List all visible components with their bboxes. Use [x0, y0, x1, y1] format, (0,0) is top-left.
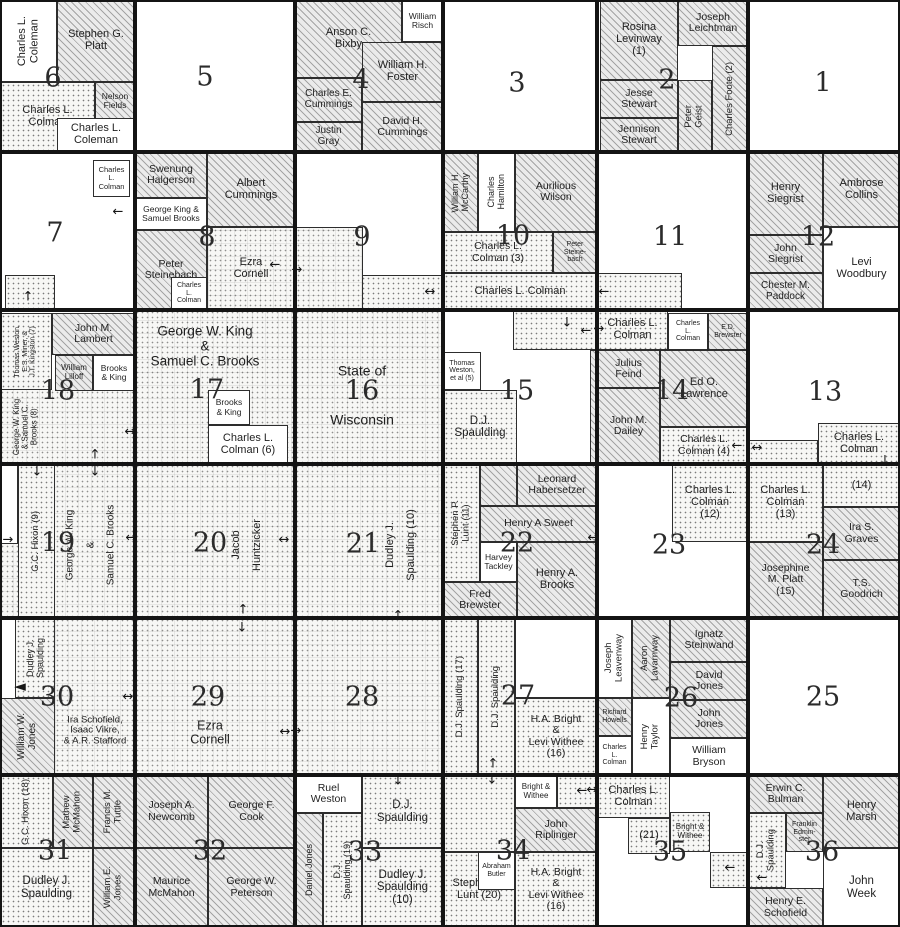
parcel-owner-label: Henry A. Brooks [536, 568, 578, 592]
parcel-owner-label: John Riplinger [535, 819, 576, 842]
parcel-owner-label: Aurilious Wilson [536, 181, 576, 204]
section-number-2: 2 [658, 65, 675, 96]
field-owner-label: Wisconsin [330, 412, 394, 427]
parcel[interactable]: D.J. Spaulding (19) [323, 813, 362, 927]
parcel-owner-label: George W. Peterson [226, 876, 276, 899]
parcel-owner-label: Jennison Stewart [618, 124, 660, 147]
parcel-owner-label: Charles L. Coleman [71, 123, 121, 147]
parcel[interactable]: Joseph Leavenway [597, 618, 632, 698]
parcel[interactable]: Chester M. Paddock [748, 273, 823, 310]
annotation-arrow-icon: ← [113, 205, 124, 220]
parcel-owner-label: Chester M. Paddock [761, 281, 810, 303]
parcel-owner-label: D.J. Spaulding (17) [455, 656, 466, 737]
parcel-owner-label: William H. McCarthy [450, 172, 470, 213]
parcel-owner-label: William W. Jones [16, 713, 38, 760]
section-number-11: 11 [653, 222, 687, 253]
annotation-arrow-icon: → [291, 724, 302, 739]
parcel[interactable]: Albert Cummings [207, 152, 295, 227]
parcel-owner-label: Erwin C. Bulman [766, 783, 806, 806]
parcel[interactable]: Leonard Habersetzer [517, 464, 597, 506]
parcel-owner-label: Ambrose Collins [839, 178, 883, 202]
section-number-19: 19 [41, 528, 75, 559]
parcel[interactable]: T.S. Goodrich [823, 560, 900, 618]
parcel-owner-label: John M. Lambert [74, 323, 113, 346]
parcel[interactable]: E.D. Brewster [708, 313, 748, 350]
parcel-owner-label: John M. Dailey [610, 415, 647, 438]
section-number-18: 18 [41, 376, 75, 407]
parcel-owner-label: Dudley J. Spaulding [25, 638, 45, 678]
parcel-owner-label: Mathew McMahon [62, 791, 83, 833]
parcel[interactable]: Swenung Halgerson [135, 152, 207, 198]
parcel[interactable]: Jennison Stewart [600, 118, 678, 152]
parcel-owner-label: Charles L. Colman (13) [760, 485, 810, 521]
section-number-24: 24 [806, 530, 840, 561]
section-number-15: 15 [500, 376, 534, 407]
section-number-30: 30 [40, 682, 74, 713]
section-number-14: 14 [655, 376, 689, 407]
parcel-owner-label: William E. Jones [103, 866, 124, 908]
parcel[interactable]: Henry E. Schofield [748, 888, 823, 927]
parcel[interactable]: Ambrose Collins [823, 152, 900, 227]
parcel-owner-label: Charles L. Colman [177, 282, 201, 305]
annotation-arrow-icon: ◄ [14, 677, 26, 695]
annotation-arrow-icon: ↔ [126, 531, 137, 546]
parcel-owner-label: Charles Hamilton [486, 174, 506, 210]
parcel[interactable]: John M. Dailey [597, 388, 660, 464]
parcel-owner-label: Ira S. Graves [845, 522, 879, 545]
parcel-owner-label: Julius Feind [615, 358, 642, 381]
parcel[interactable]: Stephen P. Lunt (11) [443, 464, 480, 582]
parcel[interactable]: Charles L. Coleman [57, 118, 135, 152]
section-number-29: 29 [191, 682, 225, 713]
parcel-owner-label: William Bryson [692, 745, 726, 768]
annotation-arrow-icon: ← [725, 861, 736, 876]
parcel[interactable]: Ezra Cornell [207, 227, 295, 310]
parcel-owner-label: John Jones [695, 708, 723, 731]
annotation-arrow-icon: ← [599, 285, 610, 300]
parcel-owner-label: D.J. Spaulding [454, 415, 505, 440]
parcel-owner-label: Daniel Jones [304, 844, 314, 896]
parcel[interactable]: Henry A Sweet [480, 506, 597, 542]
parcel-owner-label: Charles L. Colman [676, 320, 700, 343]
parcel-owner-label: Charles L. Colman (6) [221, 433, 275, 457]
parcel-owner-label: Levi Woodbury [837, 257, 887, 281]
annotation-arrow-icon: ↔ [125, 425, 136, 440]
field-owner-label: Samuel C. Brooks [106, 505, 117, 586]
parcel-owner-label: Charles L. Coleman [16, 16, 41, 66]
parcel-owner-label: Charles L. Colman [834, 432, 884, 456]
parcel[interactable]: Charles L. Colman [93, 160, 130, 197]
plat-map: Stephen G. PlattCharles L. ColemanCharle… [0, 0, 900, 927]
section-number-36: 36 [805, 837, 839, 868]
parcel-owner-label: Jesse Stewart [621, 88, 657, 111]
parcel[interactable]: William E. Jones [93, 848, 135, 927]
annotation-arrow-icon: ↔ [588, 531, 599, 546]
section-number-35: 35 [653, 837, 687, 868]
annotation-arrow-icon: ↑ [393, 609, 404, 624]
parcel-owner-label: Richard Howells [602, 709, 627, 724]
annotation-arrow-icon: → [292, 263, 303, 278]
parcel-owner-label: Albert Cummings [225, 178, 278, 202]
parcel-owner-label: Ruel Weston [311, 783, 346, 806]
section-number-1: 1 [814, 68, 831, 99]
parcel-owner-label: Ezra Cornell [234, 257, 269, 281]
annotation-arrow-icon: ↓ [487, 773, 498, 788]
annotation-arrow-icon: ↔ [594, 322, 605, 337]
parcel-owner-label: George King & Samuel Brooks [142, 205, 200, 223]
parcel[interactable]: Daniel Jones [295, 813, 323, 927]
field-owner-label: Ira Schofield, Isaac Vikre, & A.R. Staff… [64, 715, 127, 746]
section-number-23: 23 [652, 530, 686, 561]
parcel-owner-label: Charles L. Colman (4) [678, 434, 730, 457]
parcel[interactable]: Stephen G. Platt [57, 0, 135, 82]
parcel[interactable]: Charles L. Colman (6) [208, 425, 288, 464]
parcel[interactable]: Ignatz Steinwand [670, 618, 748, 662]
section-cell [135, 0, 295, 152]
annotation-arrow-icon: ← [581, 324, 592, 339]
annotation-arrow-icon: ↔ [752, 441, 763, 456]
section-number-13: 13 [808, 377, 842, 408]
parcel-owner-label: Charles Foote (2) [725, 62, 736, 136]
parcel[interactable]: Erwin C. Bulman [748, 775, 823, 813]
parcel-owner-label: H.A. Bright & Levi Withee (16) [529, 867, 584, 912]
annotation-arrow-icon: ↔ [279, 533, 290, 548]
parcel[interactable]: Thomas Weston, et al (5) [443, 352, 481, 390]
section-number-34: 34 [496, 836, 530, 867]
section-number-25: 25 [806, 682, 840, 713]
section-number-32: 32 [193, 836, 227, 867]
parcel-owner-label: Dudley J. Spaulding (10) [377, 869, 428, 906]
section-number-33: 33 [348, 837, 382, 868]
parcel[interactable]: Justin Gray [295, 122, 362, 152]
parcel-owner-label: Charles L. Colman [602, 744, 626, 767]
parcel[interactable]: Charles L. Colman [443, 273, 597, 310]
annotation-arrow-icon: ← [732, 439, 743, 454]
parcel-owner-label: Maurice McMahon [148, 876, 194, 899]
section-number-27: 27 [501, 681, 535, 712]
parcel[interactable]: Joseph Leichtman [678, 0, 748, 46]
parcel-owner-label: Henry Marsh [846, 800, 877, 824]
parcel-owner-label: Bright & Withee [522, 783, 550, 800]
parcel-owner-label: William H. Foster [378, 60, 428, 84]
parcel[interactable]: Peter Steine- bach [553, 232, 597, 273]
parcel[interactable]: Ruel Weston [295, 775, 362, 813]
section-number-21: 21 [346, 529, 380, 560]
annotation-arrow-icon: ↔ [280, 725, 291, 740]
parcel[interactable] [597, 273, 682, 310]
parcel[interactable]: William Bryson [670, 738, 748, 775]
section-number-9: 9 [353, 222, 370, 253]
annotation-arrow-icon: ↓ [393, 774, 404, 789]
section-number-12: 12 [801, 222, 835, 253]
parcel[interactable] [590, 350, 597, 464]
field-owner-label: Spaulding (10) [405, 509, 417, 581]
parcel-owner-label: Fred Brewster [459, 589, 500, 612]
parcel-owner-label: Charles L. Colman [608, 785, 658, 809]
parcel-owner-label: John Week [847, 875, 876, 900]
parcel[interactable]: William H. McCarthy [443, 152, 478, 232]
section-number-17: 17 [190, 375, 224, 406]
parcel-owner-label: David H. Cummings [377, 116, 427, 139]
parcel-owner-label: Leonard Habersetzer [528, 474, 585, 497]
parcel[interactable]: Fred Brewster [443, 582, 517, 618]
section-number-20: 20 [193, 528, 227, 559]
parcel-owner-label: George F. Cook [228, 800, 274, 823]
annotation-arrow-icon: ↓ [32, 465, 43, 480]
parcel-owner-label: Brooks & King [101, 364, 127, 382]
parcel[interactable]: Peter Geist [678, 80, 712, 152]
parcel-owner-label: Joseph Leichtman [689, 12, 737, 35]
field-owner-label: George W. King & Samuel C. Brooks [151, 325, 260, 370]
parcel-owner-label: Swenung Halgerson [147, 164, 195, 187]
parcel-owner-label: D.J. Spaulding [756, 829, 777, 871]
section-number-8: 8 [198, 222, 215, 253]
annotation-arrow-icon: ← [270, 258, 281, 273]
annotation-arrow-icon: ↓ [880, 454, 891, 469]
parcel[interactable]: Charles L. Colman [597, 310, 668, 350]
parcel-owner-label: Justin Gray [315, 126, 341, 148]
annotation-arrow-icon: → [3, 533, 14, 548]
parcel[interactable]: William H. Foster [362, 42, 443, 102]
parcel-owner-label: Peter Geist [684, 105, 705, 128]
parcel[interactable]: Charles L. Colman [597, 736, 632, 775]
annotation-arrow-icon: ↑ [90, 448, 101, 463]
parcel-owner-label: Joseph A. Newcomb [148, 800, 195, 823]
parcel-owner-label: Charles L. Colman [99, 166, 125, 190]
parcel[interactable]: Brooks & King [93, 355, 135, 391]
annotation-arrow-icon: ↑ [238, 603, 249, 618]
parcel-owner-label: D.J. Spaulding [377, 799, 428, 824]
parcel-owner-label: Aaron Lavarnway [640, 635, 661, 681]
parcel[interactable]: (14) [823, 464, 900, 507]
parcel[interactable]: Julius Feind [597, 350, 660, 388]
section-number-22: 22 [500, 528, 534, 559]
parcel[interactable]: David H. Cummings [362, 102, 443, 152]
section-number-28: 28 [345, 682, 379, 713]
parcel-owner-label: T.S. Goodrich [840, 578, 883, 601]
field-owner-label: Jacob [230, 530, 242, 559]
parcel-owner-label: Stephen P. Lunt (11) [451, 500, 472, 546]
field-owner-label: Huntzicker [251, 519, 263, 571]
parcel-owner-label: David Jones [695, 670, 723, 693]
parcel[interactable]: Francis M. Tuttle [93, 775, 135, 848]
annotation-arrow-icon: ↓ [562, 316, 573, 331]
parcel-owner-label: Thomas Weston, E.S. Miner, & J.T. Kingst… [14, 325, 37, 378]
section-number-5: 5 [196, 62, 213, 93]
parcel[interactable]: Charles L. Colman [668, 313, 708, 350]
annotation-arrow-icon: ↑ [488, 757, 499, 772]
annotation-arrow-icon: ↔ [587, 783, 598, 798]
parcel-owner-label: G.C. Hixon (18) [21, 779, 32, 845]
section-number-16: 16 [345, 376, 379, 407]
parcel[interactable]: Nelson Fields [95, 82, 135, 120]
annotation-arrow-icon: ↔ [123, 690, 134, 705]
parcel[interactable]: Charles L. Colman [171, 277, 207, 310]
parcel[interactable]: George King & Samuel Brooks [135, 198, 207, 230]
annotation-arrow-icon: ↔ [425, 285, 436, 300]
parcel[interactable] [480, 464, 517, 506]
parcel-owner-label: William Risch [409, 12, 436, 30]
parcel[interactable]: William Risch [402, 0, 443, 42]
annotation-arrow-icon: ↓ [237, 621, 248, 636]
parcel[interactable]: Charles L. Colman [597, 775, 670, 818]
parcel-owner-label: John Siegrist [768, 243, 803, 266]
parcel-owner-label: Henry E. Schofield [764, 896, 807, 919]
parcel-owner-label: Nelson Fields [102, 92, 128, 110]
annotation-arrow-icon: ← [757, 871, 768, 886]
parcel-owner-label: Charles L. Colman [607, 318, 657, 342]
parcel-owner-label: Joseph Leavenway [604, 634, 625, 682]
parcel-owner-label: Charles L. Colman [474, 286, 565, 298]
parcel-owner-label: E.D. Brewster [714, 324, 742, 339]
parcel-owner-label: H.A. Bright & Levi Withee (16) [529, 714, 584, 759]
parcel-owner-label: Stephen G. Platt [68, 29, 124, 53]
parcel-owner-label: Peter Steine- bach [564, 241, 586, 264]
parcel-owner-label: Rosina Levinway (1) [616, 22, 662, 58]
parcel-owner-label: Thomas Weston, et al (5) [449, 360, 475, 383]
field-owner-label: Dudley J. [384, 522, 396, 568]
parcel[interactable]: D.J. Spaulding (17) [443, 618, 478, 775]
parcel-owner-label: Henry Taylor [640, 724, 661, 749]
section-number-4: 4 [352, 65, 369, 96]
parcel-owner-label: (14) [852, 480, 872, 492]
field-owner-label: & [86, 542, 97, 549]
field-owner-label: Ezra Cornell [190, 719, 230, 747]
parcel-owner-label: Josephine M. Platt (15) [762, 563, 810, 597]
field-owner-label: George W. King & Samuel C. Brooks (8) [13, 399, 39, 455]
parcel[interactable]: Bright & Withee [515, 775, 557, 808]
annotation-arrow-icon: ↑ [23, 290, 34, 305]
parcel-owner-label: Charles E. Cummings [305, 89, 353, 111]
section-number-7: 7 [46, 218, 63, 249]
parcel-owner-label: Charles L. Colman (12) [685, 485, 735, 521]
parcel-owner-label: Henry Siegrist [767, 182, 804, 206]
parcel-owner-label: Ignatz Steinwand [684, 629, 733, 652]
annotation-arrow-icon: ↓ [90, 465, 101, 480]
section-number-31: 31 [38, 836, 72, 867]
parcel[interactable]: Charles Foote (2) [712, 46, 748, 152]
parcel[interactable]: John M. Lambert [52, 313, 135, 355]
section-number-3: 3 [508, 68, 525, 99]
parcel-owner-label: Dudley J. Spaulding [21, 875, 72, 900]
parcel-owner-label: Francis M. Tuttle [103, 789, 124, 833]
section-number-6: 6 [44, 63, 61, 94]
parcel[interactable]: Richard Howells [597, 698, 632, 736]
section-number-26: 26 [664, 683, 698, 714]
section-number-10: 10 [496, 221, 530, 252]
